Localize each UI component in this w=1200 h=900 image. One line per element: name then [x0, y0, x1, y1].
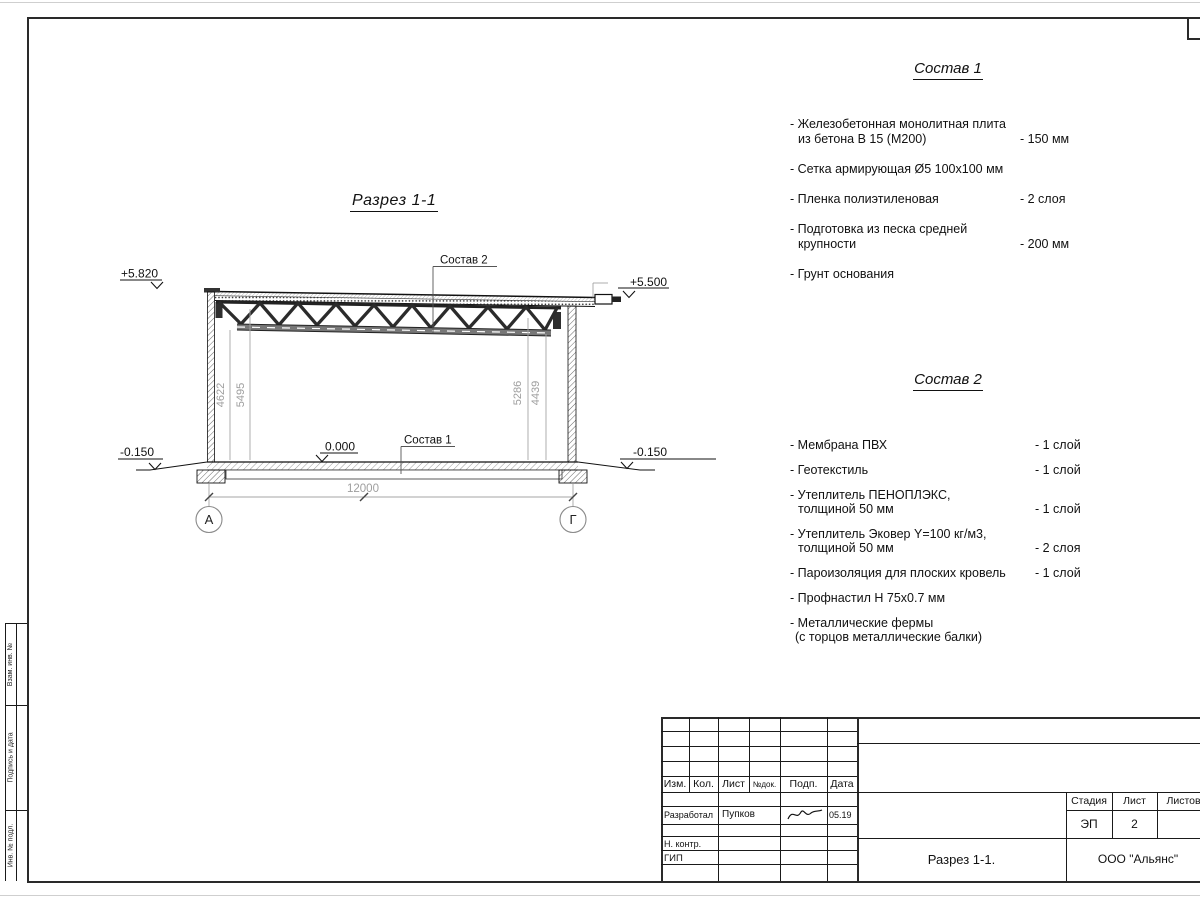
ground-wedge-right [578, 462, 655, 470]
axis-label-g: Г [569, 512, 576, 527]
tb-role-gip: ГИП [664, 853, 683, 864]
foundation-left [197, 470, 225, 483]
elevation-zero: 0.000 [325, 440, 355, 454]
list-item: - Металлические фермы [790, 616, 1095, 630]
sostav1-list: - Железобетонная монолитная плита из бет… [790, 117, 1095, 282]
tb-role-developed: Разработал [664, 810, 713, 820]
drawing-sheet: Взам. инв. № Подпись и дата Инв. № подл.… [0, 0, 1200, 900]
list-item: - Пароизоляция для плоских кровель- 1 сл… [790, 566, 1095, 580]
list-item: - Мембрана ПВХ- 1 слой [790, 438, 1095, 452]
tb-sheet-label: Лист [1112, 795, 1157, 807]
foundation-right [559, 470, 587, 483]
dim-4439: 4439 [530, 381, 542, 405]
roof-edge-cap [595, 295, 612, 305]
tb-company: ООО "Альянс" [1066, 852, 1200, 866]
list-item: - Подготовка из песка средней [790, 222, 1095, 237]
sostav2-list: - Мембрана ПВХ- 1 слой - Геотекстиль- 1 … [790, 438, 1095, 644]
tb-col-izm: Изм. [661, 778, 689, 790]
tb-col-data: Дата [827, 778, 857, 790]
list-item: - Грунт основания [790, 267, 1095, 282]
elevation-bottom-right: -0.150 [633, 445, 667, 459]
list-item: из бетона В 15 (М200)- 150 мм [790, 132, 1095, 147]
sand-layer [226, 470, 562, 479]
left-wall [208, 292, 215, 462]
floor-and-foundation [136, 462, 655, 483]
tb-col-podp: Подп. [780, 778, 827, 790]
list-item: толщиной 50 мм- 2 слоя [790, 541, 1095, 555]
list-item: - Железобетонная монолитная плита [790, 117, 1095, 132]
list-item: - Сетка армирующая Ø5 100х100 мм [790, 162, 1095, 177]
list-item: - Пленка полиэтиленовая- 2 слоя [790, 192, 1095, 207]
tb-name-developed: Пупков [722, 809, 755, 820]
list-item: толщиной 50 мм- 1 слой [790, 502, 1095, 516]
sostav2-title: Состав 2 [790, 371, 1106, 388]
right-wall [568, 306, 576, 462]
roof-edge-tip [612, 297, 621, 303]
tb-role-ncontrol: Н. контр. [664, 839, 701, 849]
tb-stage-value: ЭП [1066, 817, 1112, 831]
tb-col-list: Лист [718, 778, 749, 790]
tb-col-ndok: №док. [749, 780, 780, 789]
ref-sostav1: Состав 1 [404, 435, 452, 447]
tb-sheets-label: Листов [1157, 795, 1200, 807]
axis-marks [196, 507, 586, 533]
dim-5286: 5286 [512, 381, 524, 405]
tb-stage-label: Стадия [1066, 795, 1112, 807]
sostav1-title: Состав 1 [790, 60, 1106, 77]
tb-sheet-value: 2 [1112, 817, 1157, 831]
elevation-bottom-left: -0.150 [120, 445, 154, 459]
axis-label-a: А [205, 512, 214, 527]
tb-doc-title: Разрез 1-1. [857, 852, 1066, 867]
dim-4622: 4622 [215, 383, 227, 407]
list-item: (с торцов металлические балки) [790, 630, 1095, 644]
list-item: - Профнастил Н 75х0.7 мм [790, 591, 1095, 605]
dim-12000: 12000 [347, 483, 379, 495]
list-item: - Утеплитель Эковер Y=100 кг/м3, [790, 527, 1095, 541]
list-item: крупности- 200 мм [790, 237, 1095, 252]
truss [216, 302, 562, 336]
tb-date-developed: 05.19 [829, 810, 852, 820]
floor-slab [207, 462, 578, 470]
ground-wedge-left [136, 462, 207, 470]
ref-sostav2: Состав 2 [440, 255, 488, 267]
signature [784, 806, 824, 823]
tb-col-kol: Кол. [689, 778, 718, 790]
elevation-top-left: +5.820 [121, 267, 158, 281]
elevation-top-right: +5.500 [630, 275, 667, 289]
list-item: - Геотекстиль- 1 слой [790, 463, 1095, 477]
list-item: - Утеплитель ПЕНОПЛЭКС, [790, 488, 1095, 502]
dim-5495: 5495 [235, 383, 247, 407]
